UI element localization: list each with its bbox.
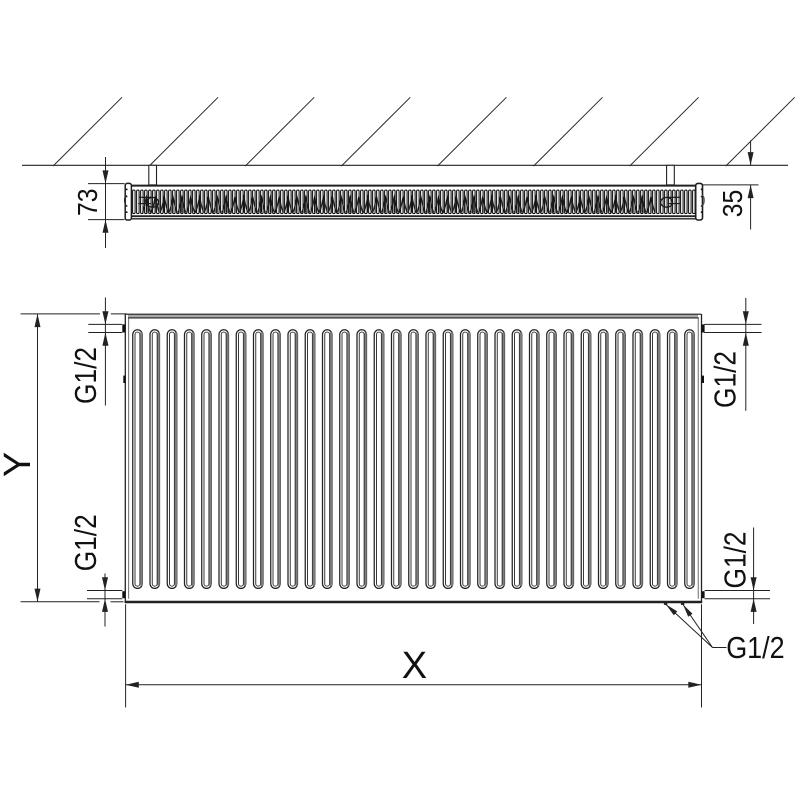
- svg-text:G1/2: G1/2: [69, 514, 103, 571]
- svg-text:35: 35: [717, 190, 748, 218]
- svg-text:G1/2: G1/2: [709, 351, 743, 408]
- svg-text:G1/2: G1/2: [726, 631, 785, 665]
- svg-text:G1/2: G1/2: [719, 532, 753, 589]
- svg-text:Y: Y: [0, 452, 39, 477]
- svg-text:73: 73: [72, 188, 103, 216]
- svg-text:X: X: [402, 645, 427, 687]
- svg-text:G1/2: G1/2: [69, 347, 103, 404]
